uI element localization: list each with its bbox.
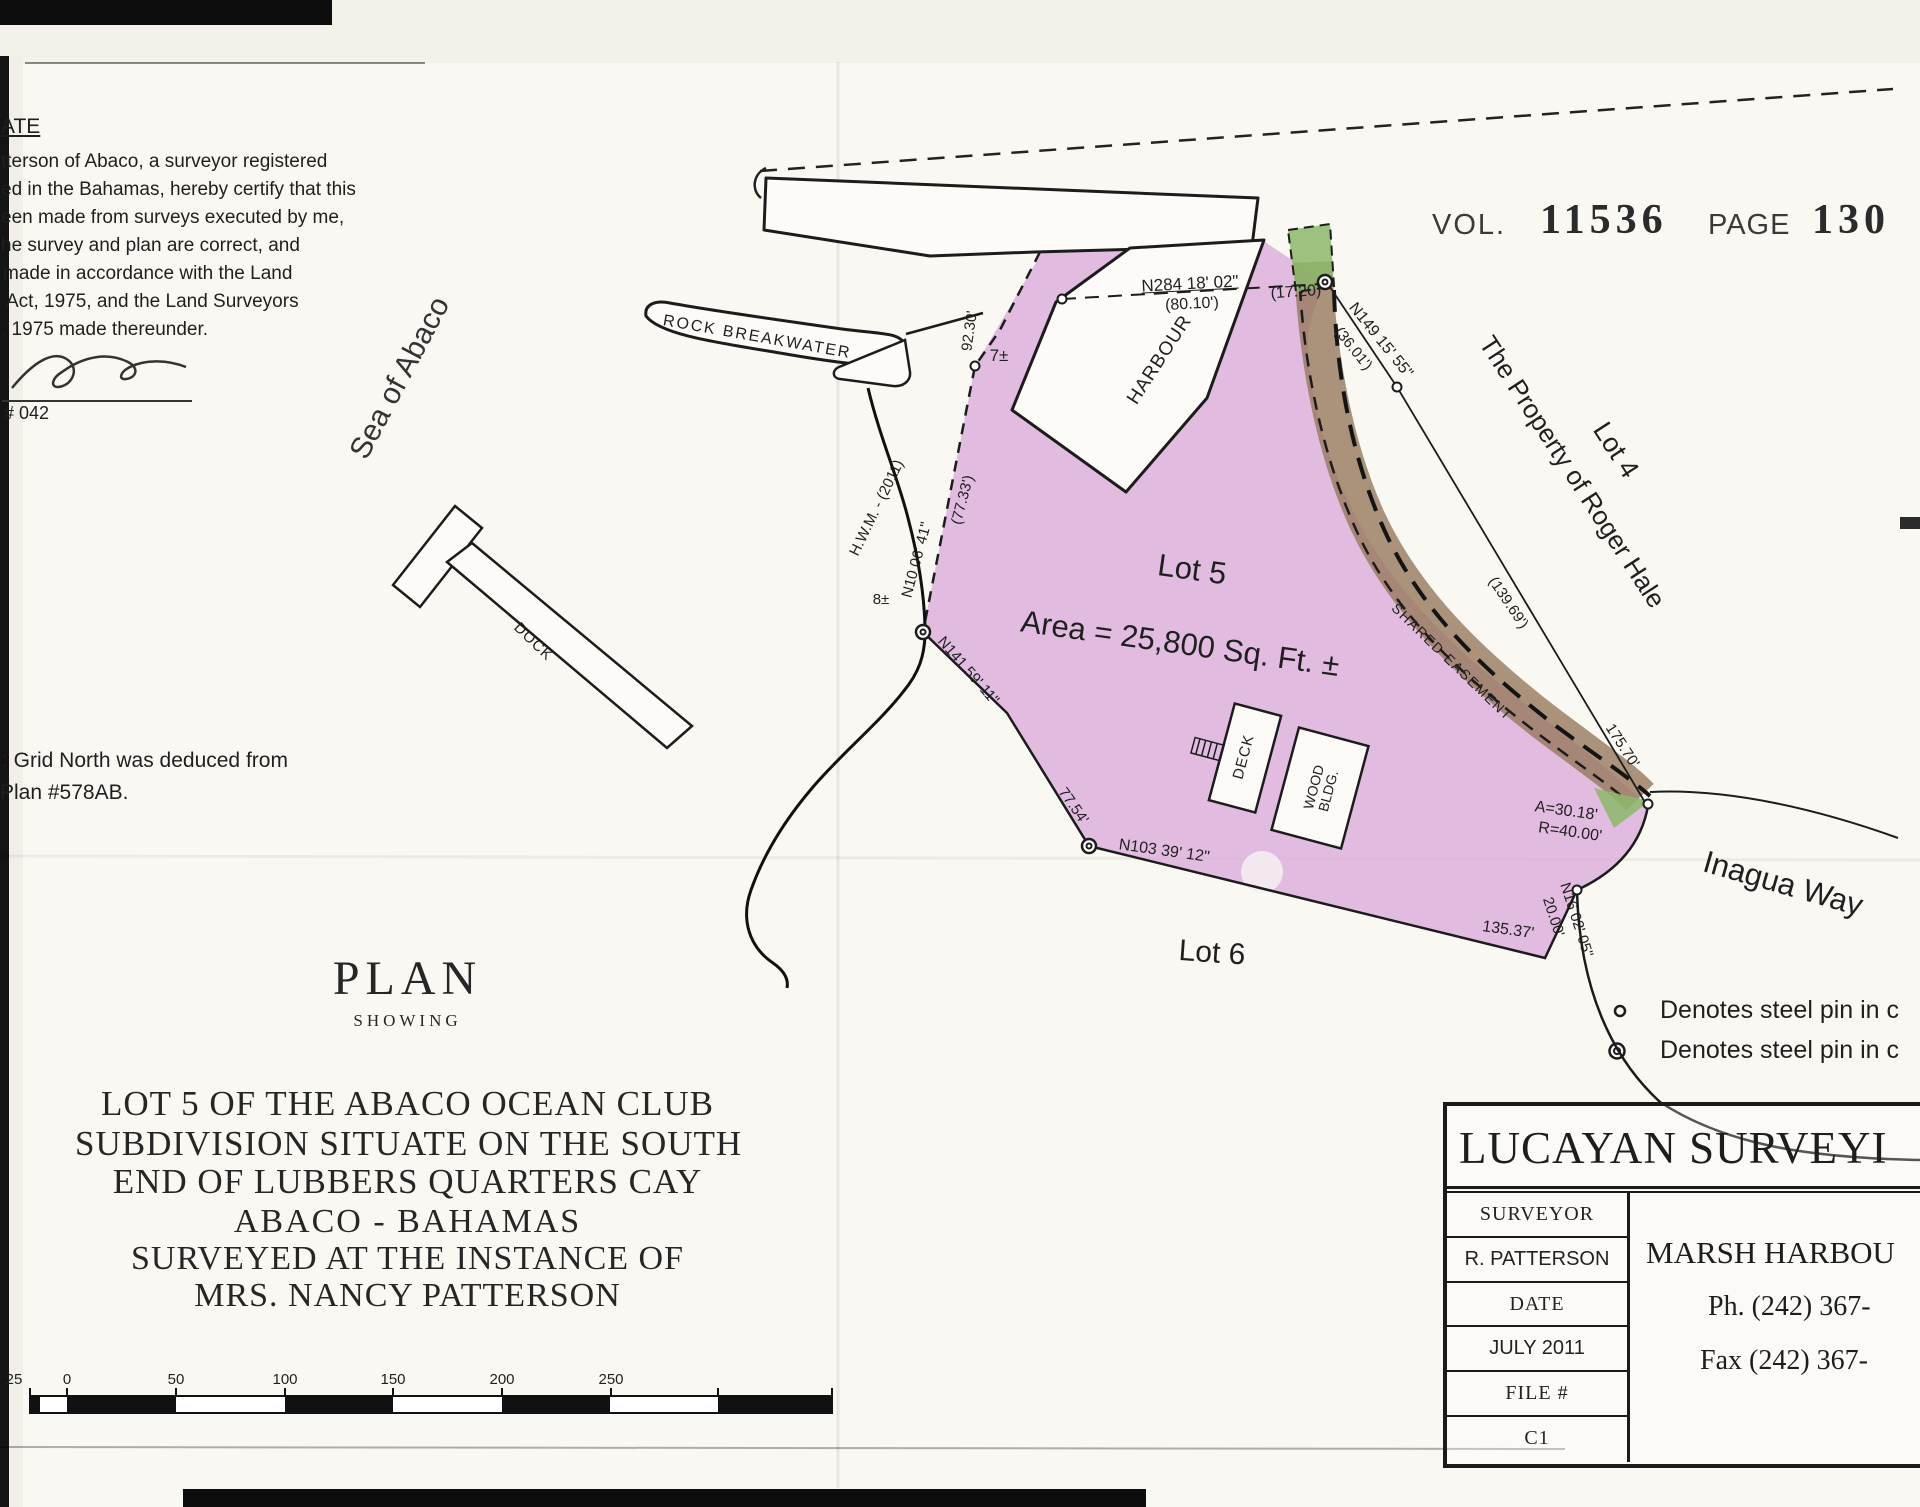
certificate-line: een made from surveys executed by me, [1,208,344,228]
date-label: DATE [1447,1283,1627,1328]
title-line-1: LOT 5 OF THE ABACO OCEAN CLUB [75,1086,740,1123]
eraser-blob [1241,851,1283,893]
title-line-2: SUBDIVISION SITUATE ON THE SOUTH [75,1126,740,1163]
scale-tick: 150 [380,1372,405,1388]
page-number: 130 [1812,198,1890,242]
title-block-right-column: MARSH HARBOU Ph. (242) 367- Fax (242) 36… [1630,1193,1920,1462]
scale-tick: 100 [272,1372,297,1388]
title-block-body: SURVEYOR R. PATTERSON DATE JULY 2011 FIL… [1447,1191,1920,1462]
file-value: C1 [1447,1417,1627,1460]
scale-tick: 200 [489,1372,514,1388]
lot6-label: Lot 6 [1178,935,1247,971]
office-city: MARSH HARBOU [1646,1235,1895,1271]
survey-plan-page: ATE tterson of Abaco, a surveyor registe… [0,0,1920,1507]
scale-tick: 250 [598,1372,623,1388]
title-line-5: SURVEYED AT THE INSTANCE OF [75,1241,740,1277]
office-fax: Fax (242) 367- [1700,1345,1868,1377]
steel-pin-icon [1615,1006,1625,1016]
dim-17-20: (17.20) [1270,283,1322,303]
title-block-left-column: SURVEYOR R. PATTERSON DATE JULY 2011 FIL… [1447,1193,1630,1462]
scale-tick: 0 [63,1372,71,1388]
title-line-6: MRS. NANCY PATTERSON [75,1278,740,1314]
dim-80-10: (80.10') [1165,295,1220,315]
surveyor-signature [2,356,192,401]
lot5-parcel-fill [923,240,1648,958]
legend-item-1: Denotes steel pin in c [1660,997,1899,1023]
certificate-heading: ATE [1,116,40,138]
road-boundary-dashed-line [755,89,1893,198]
grid-north-note-line1: : Grid North was deduced from [2,750,288,772]
certificate-line: tterson of Abaco, a surveyor registered [1,152,327,172]
surveyor-label: SURVEYOR [1447,1193,1627,1238]
certificate-line: Act, 1975, and the Land Surveyors [6,292,299,312]
dock-outline [393,506,692,748]
file-label: FILE # [1447,1372,1627,1417]
title-line-4: ABACO - BAHAMAS [75,1204,740,1240]
certificate-line: , 1975 made thereunder. [1,320,208,340]
pin-7-label: 7± [990,347,1009,365]
certificate-line: he survey and plan are correct, and [1,236,300,256]
vol-label: VOL. [1432,210,1506,240]
office-phone: Ph. (242) 367- [1708,1291,1871,1323]
surveyor-number: # 042 [4,404,49,423]
scale-bar [30,1388,832,1413]
date-value: JULY 2011 [1447,1327,1627,1372]
certificate-line: made in accordance with the Land [3,264,292,284]
scale-tick: 50 [168,1372,185,1388]
page-label: PAGE [1708,210,1790,240]
surveyor-value: R. PATTERSON [1447,1238,1627,1283]
pin-8-label: 8± [873,592,890,608]
legend-item-2: Denotes steel pin in c [1660,1037,1899,1063]
title-line-3: END OF LUBBERS QUARTERS CAY [75,1164,740,1201]
lot5-polygon [923,240,1648,958]
scale-tick: 25 [6,1372,23,1388]
plan-title: PLAN [75,954,740,1004]
title-block-company: LUCAYAN SURVEYI [1447,1106,1920,1189]
certificate-line: ed in the Bahamas, hereby certify that t… [1,180,356,200]
grid-north-note-line2: Plan #578AB. [0,782,128,804]
title-block: LUCAYAN SURVEYI SURVEYOR R. PATTERSON DA… [1443,1102,1920,1468]
plan-showing: SHOWING [75,1012,740,1030]
vol-number: 11536 [1540,198,1668,242]
